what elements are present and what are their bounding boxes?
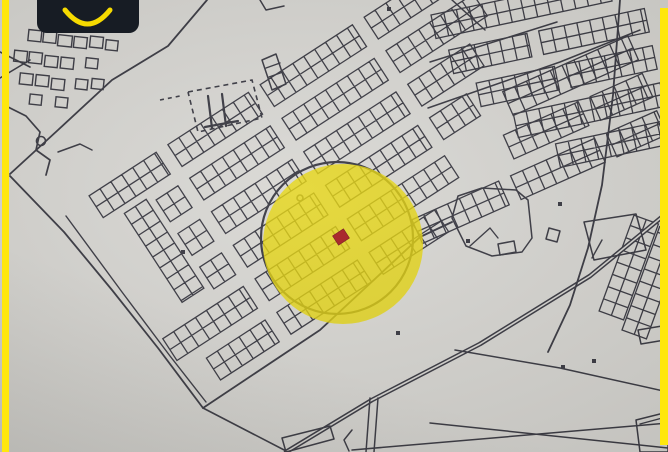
highlight-circle <box>263 164 423 324</box>
brand-logo: SAKANI <box>37 0 139 33</box>
yellow-border-left <box>2 0 9 452</box>
map-canvas[interactable] <box>0 0 668 452</box>
map-screenshot-page: SAKANI <box>0 0 668 452</box>
brand-logo-text: SAKANI <box>37 0 139 5</box>
yellow-border-right <box>660 8 668 445</box>
